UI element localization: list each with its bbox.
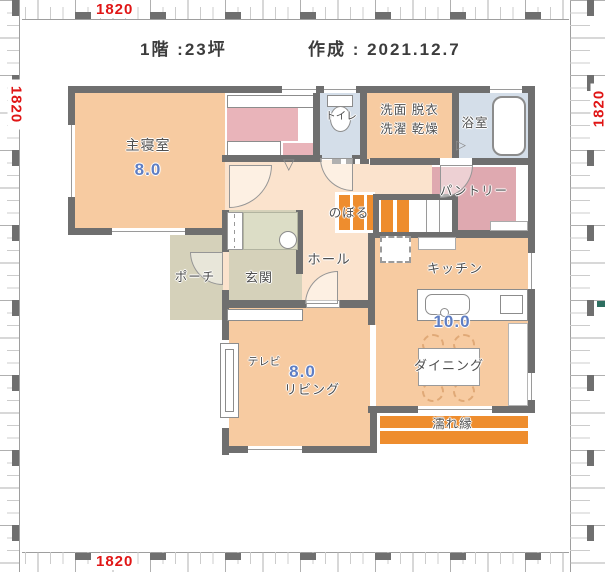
- laundry-label-line1: 洗面 脱衣: [367, 101, 452, 120]
- bath-label: 浴室: [458, 116, 492, 131]
- window-dining-right: [528, 373, 535, 400]
- window-bedroom-left: [68, 125, 75, 197]
- tv-screen: [225, 349, 234, 412]
- kitchen-label: キッチン: [420, 261, 490, 277]
- window-kitchen-right: [528, 253, 535, 289]
- bath-door-icon: ▷: [456, 138, 466, 151]
- veranda-plank: [380, 431, 528, 444]
- window-bath-top: [490, 86, 522, 93]
- porch-label: ポーチ: [170, 270, 220, 285]
- bedroom-size: 8.0: [123, 160, 173, 180]
- entrance-washbasin: [279, 231, 297, 249]
- living-counter: [227, 309, 303, 321]
- wall-laundry-bottom: [370, 158, 437, 165]
- ruler-dim-bottom: 1820: [92, 553, 137, 570]
- ruler-dim-left: 1820: [8, 80, 25, 130]
- toilet-label: トイレ: [318, 110, 364, 123]
- window-bedroom-bottom: [112, 228, 185, 235]
- living-label: リビング: [282, 382, 342, 398]
- bedroom-label: 主寝室: [113, 137, 183, 154]
- tv-label: テレビ: [240, 356, 288, 369]
- wall-ldk-left: [368, 225, 375, 325]
- shoe-cabinet-tall: [227, 212, 243, 250]
- pantry-shelf: [490, 221, 528, 231]
- floor-title: 1階 :23坪: [140, 35, 227, 60]
- window-closet-top: [282, 86, 316, 93]
- closet-folding-door-icon: ▽: [283, 157, 295, 172]
- pantry-label: パントリー: [432, 184, 516, 199]
- floorplan-canvas: 1820 1820 1820 1820 1階 :23坪 作成 : 2021.12…: [0, 0, 605, 572]
- wall-toilet-right: [360, 93, 367, 162]
- kitchen-cabinet: [418, 237, 456, 250]
- closet-hanger: [227, 108, 298, 141]
- ruler-top: [0, 0, 605, 22]
- stairs-label: のぼる: [324, 206, 374, 221]
- stair-step: [397, 200, 409, 232]
- stair-step: [381, 200, 393, 232]
- window-toilet-top: [324, 86, 356, 93]
- wall-toilet-left: [313, 93, 320, 155]
- laundry-label: 洗面 脱衣 洗濯 乾燥: [367, 101, 452, 139]
- ldk-size: 10.0: [424, 312, 480, 332]
- living-dining-opening: [370, 325, 376, 406]
- wall-pantry-bottom: [452, 230, 528, 238]
- ruler-bottom: [0, 548, 605, 572]
- refrigerator-space: [380, 236, 411, 263]
- dining-label: ダイニング: [414, 358, 484, 374]
- ruler-marker: [597, 301, 605, 307]
- entrance-label: 玄関: [229, 270, 289, 286]
- wall-living-left-lower: [222, 428, 229, 455]
- created-date: 作成 : 2021.12.7: [308, 35, 461, 60]
- pantry-door-opening: [440, 158, 472, 165]
- window-dining-bottom: [418, 406, 492, 413]
- stair-tread-line: [439, 200, 440, 232]
- stair-tread-line: [426, 200, 427, 232]
- veranda-label: 濡れ縁: [415, 417, 490, 432]
- wall-entrance-bottom: [222, 300, 368, 308]
- laundry-label-line2: 洗濯 乾燥: [367, 120, 452, 139]
- hall-label: ホール: [297, 252, 361, 268]
- closet-shelf-top: [227, 95, 315, 108]
- shoe-cabinet-dashline: [234, 214, 235, 248]
- stove: [500, 295, 523, 314]
- bathtub: [492, 96, 526, 156]
- wall-closet-bottom: [222, 155, 322, 162]
- ruler-dim-right: 1820: [591, 84, 605, 134]
- ruler-dim-top: 1820: [92, 1, 137, 18]
- dining-side-counter: [508, 323, 528, 406]
- window-living-bottom: [248, 446, 302, 453]
